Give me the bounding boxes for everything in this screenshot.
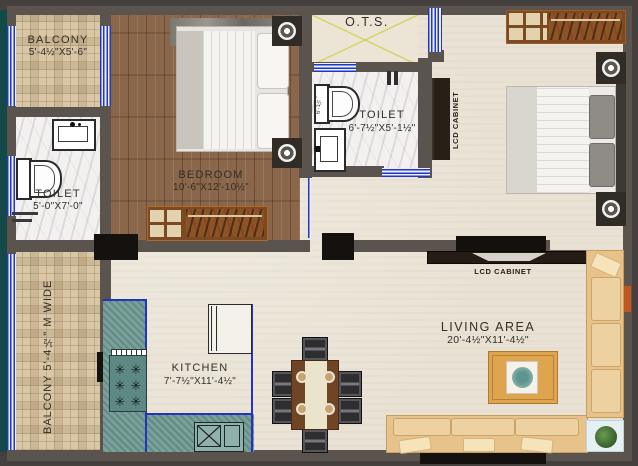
exterior-teal-strip xyxy=(0,10,7,452)
toilet1-washbasin xyxy=(52,119,96,151)
toilet2-side-dim: 6'-1½" xyxy=(316,96,323,114)
bed-mattress xyxy=(506,86,616,194)
bedroom-wardrobe xyxy=(147,206,268,241)
fridge xyxy=(208,304,252,354)
burner-icon: ✳ xyxy=(131,362,142,377)
sink-basin xyxy=(197,425,221,447)
dining-chair xyxy=(302,429,328,453)
wall-toilet2-right xyxy=(418,58,432,178)
wardrobe-rail xyxy=(551,19,620,21)
shower-icon xyxy=(394,71,398,85)
bed-sheet xyxy=(177,31,203,149)
balcony-top-label: BALCONY xyxy=(20,34,96,46)
plant-icon xyxy=(595,426,617,448)
lamp-icon xyxy=(602,59,620,77)
table-runner xyxy=(305,361,327,429)
toilet2-label: TOILET xyxy=(348,109,416,121)
shower-bar-icon xyxy=(12,212,38,215)
dining-chair xyxy=(338,371,362,397)
balcony-left-label: BALCONY 5'-4½" M WIDE xyxy=(42,266,64,448)
sofa-right xyxy=(586,250,624,418)
living-lcd-cabinet-label: LCD CABINET xyxy=(448,268,558,276)
master-lcd-cabinet xyxy=(432,78,450,160)
tv-screen-glow xyxy=(472,253,546,261)
stove-burners: ✳ ✳ ✳ ✳ ✳ ✳ xyxy=(112,362,144,409)
kitchen-dim: 7'-7½"X11'-4½" xyxy=(152,376,248,387)
bedroom-side-table xyxy=(272,16,302,46)
kitchen-line xyxy=(147,413,253,415)
burner-icon: ✳ xyxy=(115,378,126,393)
fridge-hinge xyxy=(211,306,217,351)
lamp-icon xyxy=(278,144,296,162)
master-side-table xyxy=(596,192,626,226)
plant-pot xyxy=(586,420,624,452)
wardrobe-hanging xyxy=(186,209,264,237)
wall-balcony-toilet xyxy=(7,107,102,117)
toilet1-dim: 5'-0"X7'-0" xyxy=(18,201,98,212)
sofa-cushion xyxy=(515,418,579,436)
faucet-icon xyxy=(315,146,320,152)
stove: ✳ ✳ ✳ ✳ ✳ ✳ xyxy=(109,355,147,412)
dining-chair xyxy=(338,398,362,424)
sink-cross-icon xyxy=(198,426,220,446)
living-rug xyxy=(488,351,558,404)
bed-pillow xyxy=(589,143,615,187)
wardrobe-rail xyxy=(188,215,262,217)
window-toilet2-top xyxy=(314,63,356,72)
door-bedroom xyxy=(94,234,138,260)
sitout-block xyxy=(420,452,546,464)
plate xyxy=(323,371,335,383)
burner-icon: ✳ xyxy=(131,394,142,409)
kitchen-line xyxy=(103,299,147,301)
bed-pillow xyxy=(589,95,615,139)
bed-duvet xyxy=(537,87,589,193)
sofa-cushion xyxy=(451,418,515,436)
tv-unit xyxy=(427,251,591,264)
sofa-pillow xyxy=(398,436,432,454)
living-label: LIVING AREA xyxy=(440,321,536,335)
bed-headboard xyxy=(616,82,626,198)
lamp-icon xyxy=(278,22,296,40)
door-corridor xyxy=(322,233,354,260)
bedroom-dim: 10'-6"X12'-10½" xyxy=(160,182,262,193)
bedroom-side-table xyxy=(272,138,302,168)
bedroom-label: BEDROOM xyxy=(168,169,254,181)
bed-duvet xyxy=(203,31,255,149)
window-toilet1 xyxy=(7,156,16,216)
burner-icon: ✳ xyxy=(131,378,142,393)
dining-chair xyxy=(302,337,328,361)
window-balcony-left xyxy=(7,254,16,450)
washbasin-bowl xyxy=(320,136,338,162)
master-side-table xyxy=(596,52,626,84)
coffee-table-top xyxy=(512,367,533,388)
wardrobe-shelves xyxy=(509,13,547,40)
toilet1-label: TOILET xyxy=(24,188,92,200)
plate xyxy=(296,403,308,415)
sofa-cushion xyxy=(591,369,621,413)
toilet2-dim: 6'-7½"X5'-1½" xyxy=(339,123,425,134)
window-ots xyxy=(428,8,442,52)
lamp-icon xyxy=(602,200,620,218)
burner-icon: ✳ xyxy=(115,362,126,377)
shower-bar-icon xyxy=(12,219,32,222)
floor-plan: 6'-1½" LCD CABINET ✳ ✳ ✳ ✳ ✳ xyxy=(0,0,638,466)
plate xyxy=(296,371,308,383)
balcony-top-floor xyxy=(14,14,102,110)
kitchen-label: KITCHEN xyxy=(160,362,240,374)
master-lcd-cabinet-label: LCD CABINET xyxy=(452,80,464,160)
master-bed xyxy=(506,82,626,198)
sofa-pillow xyxy=(590,252,622,278)
window-corridor-edge xyxy=(308,178,311,238)
wall-bedroom-bottom xyxy=(111,240,310,252)
bed-sheet xyxy=(507,87,537,193)
sofa-pillow xyxy=(463,438,495,452)
sofa-pillow xyxy=(520,436,553,453)
sofa-cushion xyxy=(393,418,451,436)
window-toilet2-bottom xyxy=(382,168,430,177)
wardrobe-hanging xyxy=(549,13,622,40)
balcony-top-dim: 5'-4½"X5'-6" xyxy=(14,47,102,58)
entry-marker xyxy=(624,286,631,312)
dining-table xyxy=(291,360,339,430)
plate xyxy=(323,403,335,415)
sofa-cushion xyxy=(591,277,621,321)
window-balcony-bedroom xyxy=(100,26,111,106)
window-balcony-top-outer xyxy=(7,26,16,106)
shower-icon xyxy=(387,71,391,85)
master-wardrobe xyxy=(506,10,626,44)
faucet-icon xyxy=(70,122,75,127)
coffee-table xyxy=(506,361,538,394)
faucet-icon xyxy=(78,123,81,126)
wardrobe-shelves xyxy=(150,209,184,237)
ots-label: O.T.S. xyxy=(330,16,404,30)
burner-icon: ✳ xyxy=(115,394,126,409)
sofa-cushion xyxy=(591,323,621,367)
sink-basin xyxy=(224,425,240,447)
toilet2-washbasin xyxy=(314,128,346,172)
sofa-bottom xyxy=(386,415,588,453)
kitchen-sink xyxy=(194,422,244,452)
living-dim: 20'-4½"X11'-4½" xyxy=(438,335,538,347)
washbasin-bowl xyxy=(58,126,88,142)
